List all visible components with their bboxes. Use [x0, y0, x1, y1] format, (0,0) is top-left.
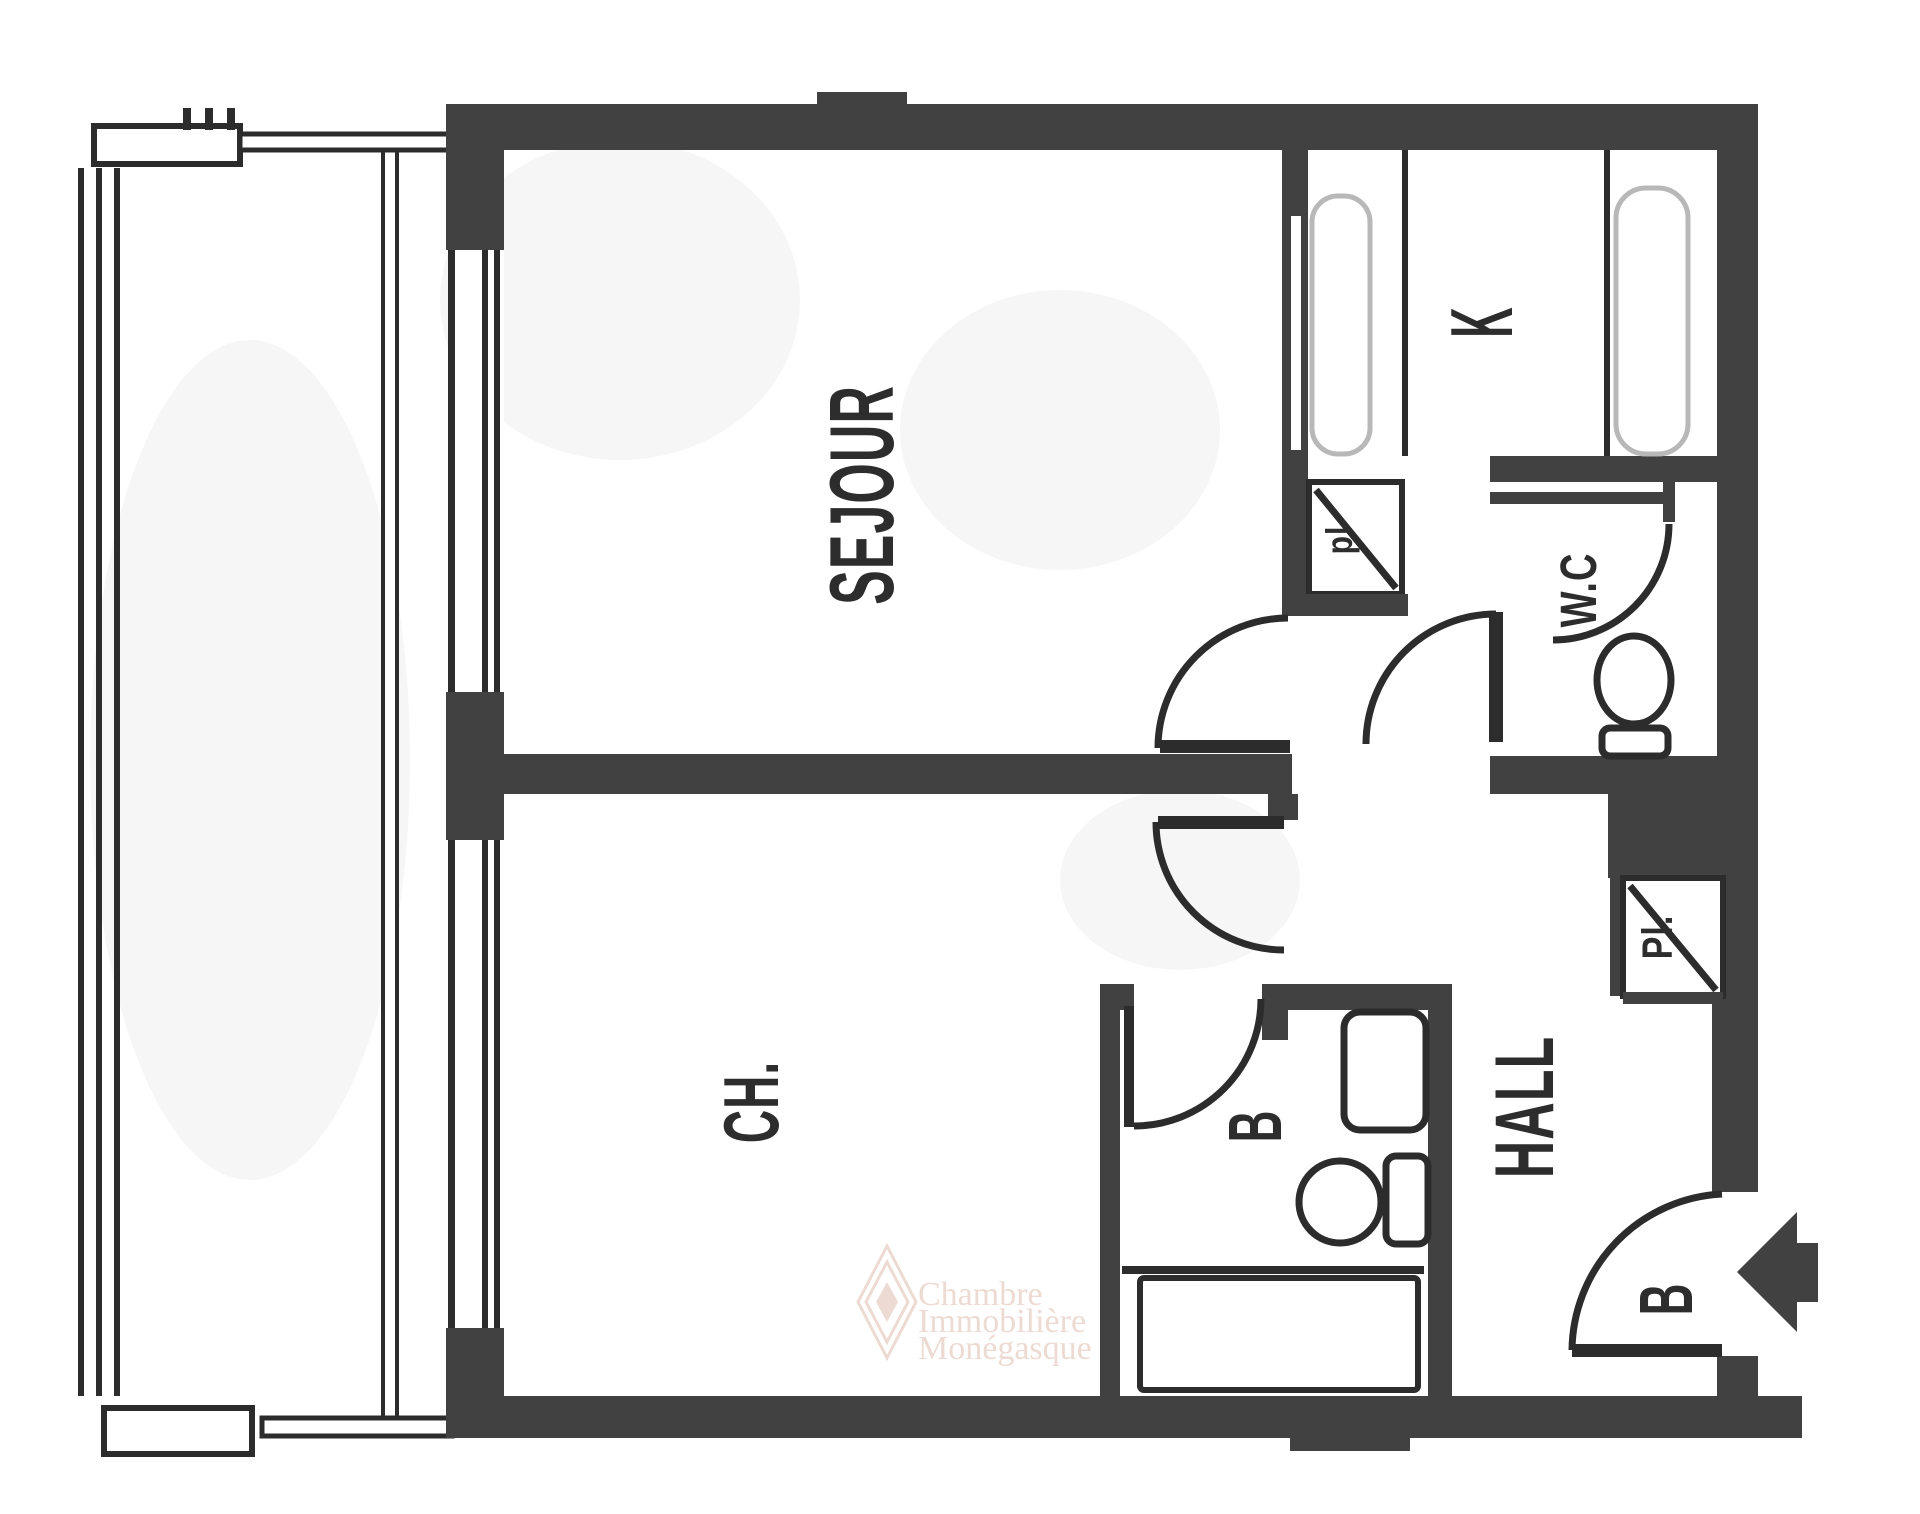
wall-bottom: [460, 1396, 1802, 1438]
door-leaf-passage: [1489, 612, 1503, 742]
door-leaf-entry: [1572, 1344, 1722, 1357]
door-arc-bathroom: [1134, 999, 1261, 1126]
bathroom-tub-icon: [1140, 1278, 1418, 1390]
entry-arrow-icon: [1737, 1212, 1818, 1332]
wall-bottom-bump: [1290, 1438, 1410, 1451]
watermark-line3: Monégasque: [918, 1330, 1092, 1367]
wall-left-segment: [446, 104, 504, 250]
balcony-rail-bottom: [262, 1418, 452, 1436]
door-arc-sejour: [1158, 618, 1288, 748]
wall-top-bump: [817, 92, 907, 106]
wall-bath-top-nib: [1262, 984, 1288, 1040]
wall-bath-top: [1262, 984, 1452, 1010]
kitchen-counter-right: [1616, 188, 1688, 454]
door-leaf-bedroom: [1158, 816, 1284, 829]
room-label-hall: HALL: [1477, 1036, 1571, 1179]
wall-kitchen-slit: [1291, 216, 1301, 450]
balcony-railing-line: [114, 168, 120, 1396]
balcony-planter-top: [94, 126, 240, 164]
balcony-railing-line: [96, 168, 102, 1396]
balcony-rail-top: [240, 134, 452, 150]
wall-bath-left: [1100, 984, 1120, 1396]
wall-bath-right: [1428, 984, 1452, 1396]
balcony-planter-bottom: [104, 1408, 252, 1454]
window-bedroom: [448, 840, 504, 1328]
balcony-tick: [205, 108, 213, 130]
room-label-bathroom: B: [1214, 1110, 1298, 1143]
bathroom: [1122, 1012, 1428, 1390]
watermark: Chambre Immobilière Monégasque: [858, 1246, 1092, 1367]
bathroom-toilet-tank-icon: [1386, 1156, 1428, 1244]
balcony-railing-line: [78, 168, 84, 1396]
room-label-sejour: SEJOUR: [811, 385, 913, 605]
room-label-wc: W.C: [1549, 553, 1607, 628]
floor-plan: SEJOUR K W.C HALL CH. B B pl Pl. Chambre…: [0, 0, 1920, 1514]
balcony-tick: [183, 108, 191, 130]
wall-mass-right: [1608, 756, 1758, 878]
watermark-diamond-icon: [858, 1246, 916, 1358]
scanned-floor-plan-page: SEJOUR K W.C HALL CH. B B pl Pl. Chambre…: [0, 0, 1920, 1514]
balcony-tick: [227, 108, 235, 130]
bathroom-divider-line: [1122, 1266, 1424, 1274]
kitchen-counter-left: [1312, 196, 1370, 454]
wc-toilet-tank-icon: [1602, 728, 1668, 756]
wc-toilet-bowl-icon: [1597, 636, 1671, 724]
balcony-edge-line: [383, 150, 397, 1418]
wall-right-lower-stub: [1717, 1356, 1758, 1404]
bathroom-toilet-bowl-icon: [1299, 1161, 1381, 1243]
room-label-closet-hall: Pl.: [1634, 915, 1681, 960]
wall-kitchen-bottom-inner: [1490, 492, 1675, 504]
wall-wc-bottom: [1490, 756, 1625, 794]
wall-top: [446, 104, 1758, 150]
door-leaf-sejour: [1160, 740, 1290, 753]
wc-door-jamb: [1663, 458, 1675, 522]
room-label-bedroom: CH.: [707, 1061, 795, 1143]
kitchen-counter-edge-left: [1402, 150, 1408, 456]
door-arc-passage: [1366, 614, 1496, 744]
door-arc-entry: [1572, 1194, 1722, 1350]
wall-sejour-bedroom: [502, 754, 1292, 794]
window-sejour: [448, 250, 504, 692]
room-label-kitchen: K: [1432, 306, 1532, 337]
bathroom-sink-icon: [1344, 1012, 1426, 1130]
room-label-closet-kitchen: pl: [1319, 526, 1361, 555]
room-label-entry: B: [1625, 1283, 1709, 1316]
wall-left-segment: [446, 692, 504, 840]
kitchen-counter-edge-right: [1604, 150, 1610, 456]
wall-kitchen-bottom: [1490, 456, 1718, 482]
door-leaf-bathroom: [1124, 1006, 1134, 1127]
